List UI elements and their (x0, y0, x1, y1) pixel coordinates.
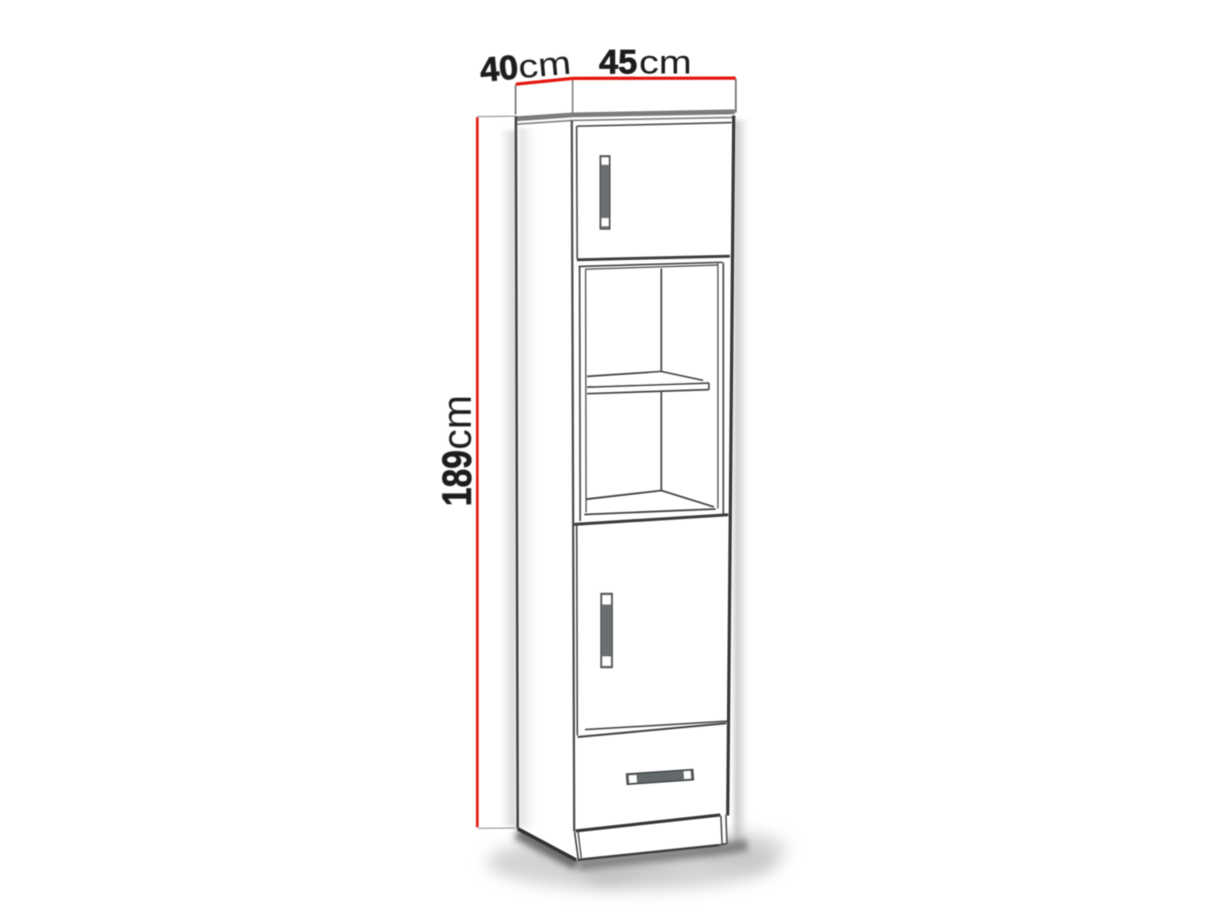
svg-text:45: 45 (599, 44, 637, 82)
svg-text:cm: cm (434, 395, 480, 450)
svg-text:cm: cm (639, 44, 692, 81)
svg-text:cm: cm (517, 44, 573, 86)
svg-text:40: 40 (478, 48, 520, 89)
svg-text:189: 189 (434, 450, 480, 506)
